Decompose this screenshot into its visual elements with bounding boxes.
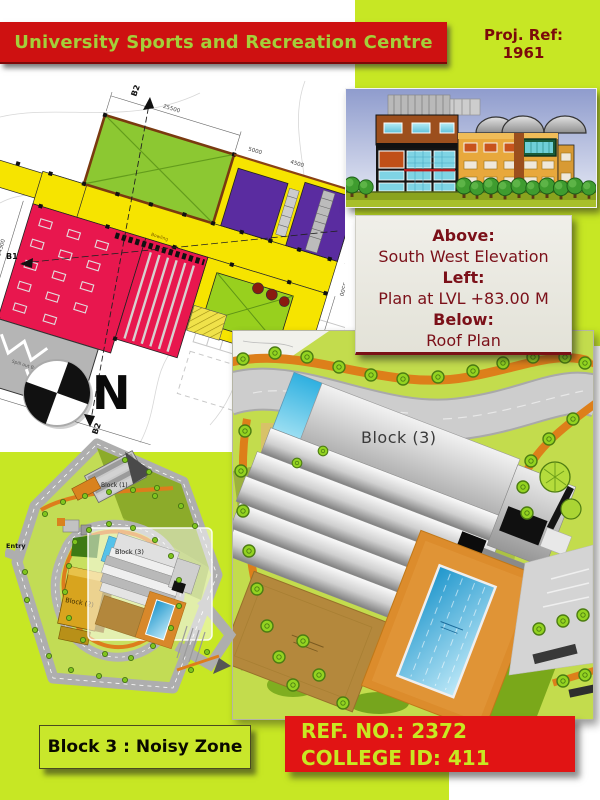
- block3-roof-label: Block (3): [361, 428, 437, 447]
- caption-left-value: Plan at LVL +83.00 M: [356, 288, 571, 309]
- svg-text:4500: 4500: [289, 159, 305, 169]
- south-west-elevation-image: [345, 88, 597, 208]
- entry-label: Entry: [6, 542, 26, 550]
- zone-label: Block 3 : Noisy Zone: [48, 737, 243, 757]
- page-title: University Sports and Recreation Centre: [14, 32, 433, 53]
- caption-above-label: Above:: [356, 225, 571, 246]
- caption-box: Above: South West Elevation Left: Plan a…: [355, 215, 572, 355]
- block1-label: Block (1): [101, 482, 128, 489]
- title-banner: University Sports and Recreation Centre: [0, 22, 447, 64]
- proj-ref-label: Proj. Ref:: [449, 26, 598, 44]
- north-letter: N: [92, 366, 131, 420]
- reference-box: REF. NO.: 2372 COLLEGE ID: 411: [285, 716, 575, 772]
- project-reference: Proj. Ref: 1961: [449, 26, 598, 62]
- b1-label: B1: [6, 252, 18, 261]
- proj-ref-value: 1961: [449, 44, 598, 62]
- caption-below-value: Roof Plan: [356, 330, 571, 351]
- svg-text:3500: 3500: [337, 281, 345, 297]
- block3-site-label: Block (3): [115, 548, 144, 556]
- ref-no: REF. NO.: 2372: [301, 718, 575, 745]
- college-id: COLLEGE ID: 411: [301, 745, 575, 772]
- zone-label-box: Block 3 : Noisy Zone: [39, 725, 251, 769]
- svg-text:5000: 5000: [247, 147, 263, 157]
- caption-below-label: Below:: [356, 309, 571, 330]
- b2-top-label: B2: [129, 84, 141, 98]
- roof-plan-image: Block (3): [232, 330, 594, 720]
- site-plan-image: Entry Block (1): [5, 430, 237, 705]
- svg-text:25500: 25500: [162, 104, 181, 115]
- caption-above-value: South West Elevation: [356, 246, 571, 267]
- presentation-board: Spill out Balcony 255: [0, 0, 600, 800]
- caption-left-label: Left:: [356, 267, 571, 288]
